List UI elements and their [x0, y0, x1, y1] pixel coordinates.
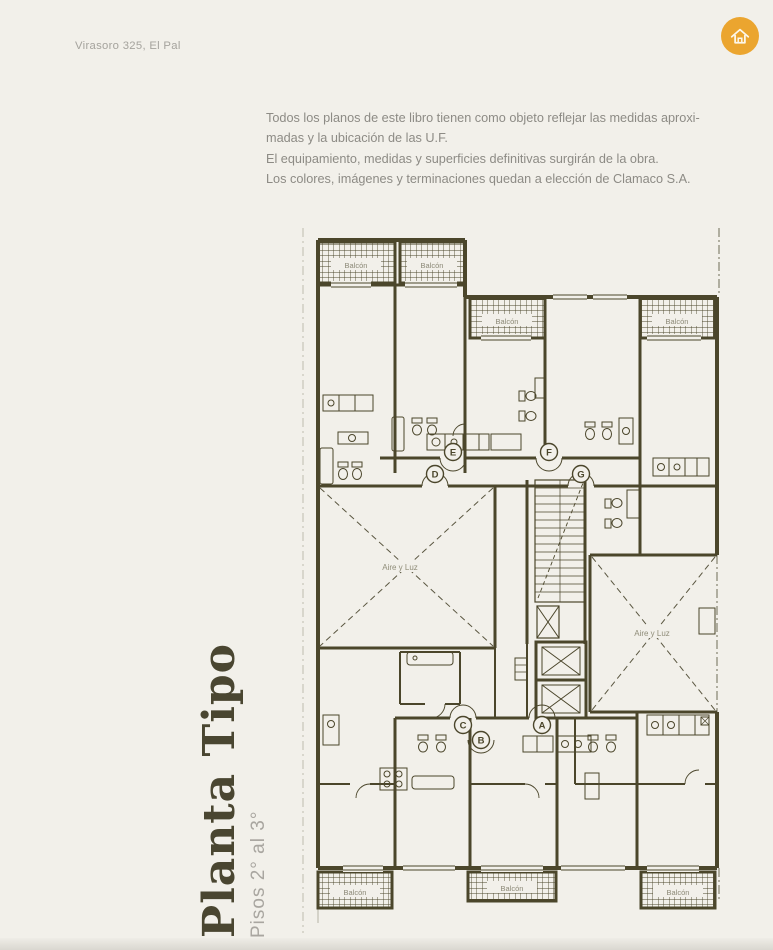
location-label: Virasoro 325, El Pal: [75, 40, 181, 52]
disclaimer-line: madas y la ubicación de las U.F.: [266, 128, 736, 148]
courtyard-right: Aire y Luz: [592, 557, 715, 710]
balcony-label: Balcón: [666, 317, 689, 326]
disclaimer-line: El equipamiento, medidas y superficies d…: [266, 149, 736, 169]
balcony-label: Balcón: [344, 888, 367, 897]
balcony-label: Balcón: [667, 888, 690, 897]
balcony: Balcón: [400, 242, 465, 283]
svg-text:G: G: [577, 469, 584, 480]
balcony: Balcón: [640, 298, 715, 338]
unit-marker-f: F: [541, 444, 558, 461]
disclaimer-line: Todos los planos de este libro tienen co…: [266, 108, 736, 128]
page: { "header": { "location_label": "Virasor…: [0, 0, 773, 950]
page-title: Planta Tipo: [194, 643, 245, 938]
unit-marker-d: D: [427, 466, 444, 483]
disclaimer-text: Todos los planos de este libro tienen co…: [266, 108, 736, 190]
svg-text:C: C: [460, 720, 467, 731]
page-subtitle: Pisos 2° al 3°: [248, 811, 270, 938]
stairs-icon: [535, 480, 585, 602]
unit-markers: D E F G C A B: [427, 444, 590, 749]
balcony: Balcón: [470, 298, 545, 338]
courtyard-label: Aire y Luz: [382, 563, 418, 572]
unit-marker-e: E: [445, 444, 462, 461]
balcony: Balcón: [468, 872, 556, 901]
svg-text:F: F: [546, 447, 552, 458]
courtyard-left: Aire y Luz: [320, 488, 493, 646]
home-button[interactable]: [721, 17, 759, 55]
home-icon: [728, 24, 752, 48]
balcony-label: Balcón: [421, 261, 444, 270]
svg-text:B: B: [478, 735, 485, 746]
unit-marker-b: B: [473, 732, 490, 749]
floor-plan: Balcón Balcón Balcón Balcón Balcón Balcó…: [295, 228, 725, 933]
balcony: Balcón: [318, 872, 392, 908]
balcony-label: Balcón: [345, 261, 368, 270]
svg-text:E: E: [450, 447, 456, 458]
unit-marker-g: G: [573, 466, 590, 483]
balcony: Balcón: [641, 872, 715, 908]
svg-text:A: A: [539, 720, 546, 731]
courtyard-label: Aire y Luz: [634, 629, 670, 638]
fixtures: [320, 378, 715, 799]
floor-plan-drawing: Balcón Balcón Balcón Balcón Balcón Balcó…: [295, 228, 725, 933]
unit-marker-a: A: [534, 717, 551, 734]
page-bottom-edge: [0, 938, 773, 950]
balcony: Balcón: [318, 242, 395, 283]
balcony-label: Balcón: [501, 884, 524, 893]
svg-text:D: D: [432, 469, 439, 480]
balcony-label: Balcón: [496, 317, 519, 326]
disclaimer-line: Los colores, imágenes y terminaciones qu…: [266, 169, 736, 189]
unit-marker-c: C: [455, 717, 472, 734]
